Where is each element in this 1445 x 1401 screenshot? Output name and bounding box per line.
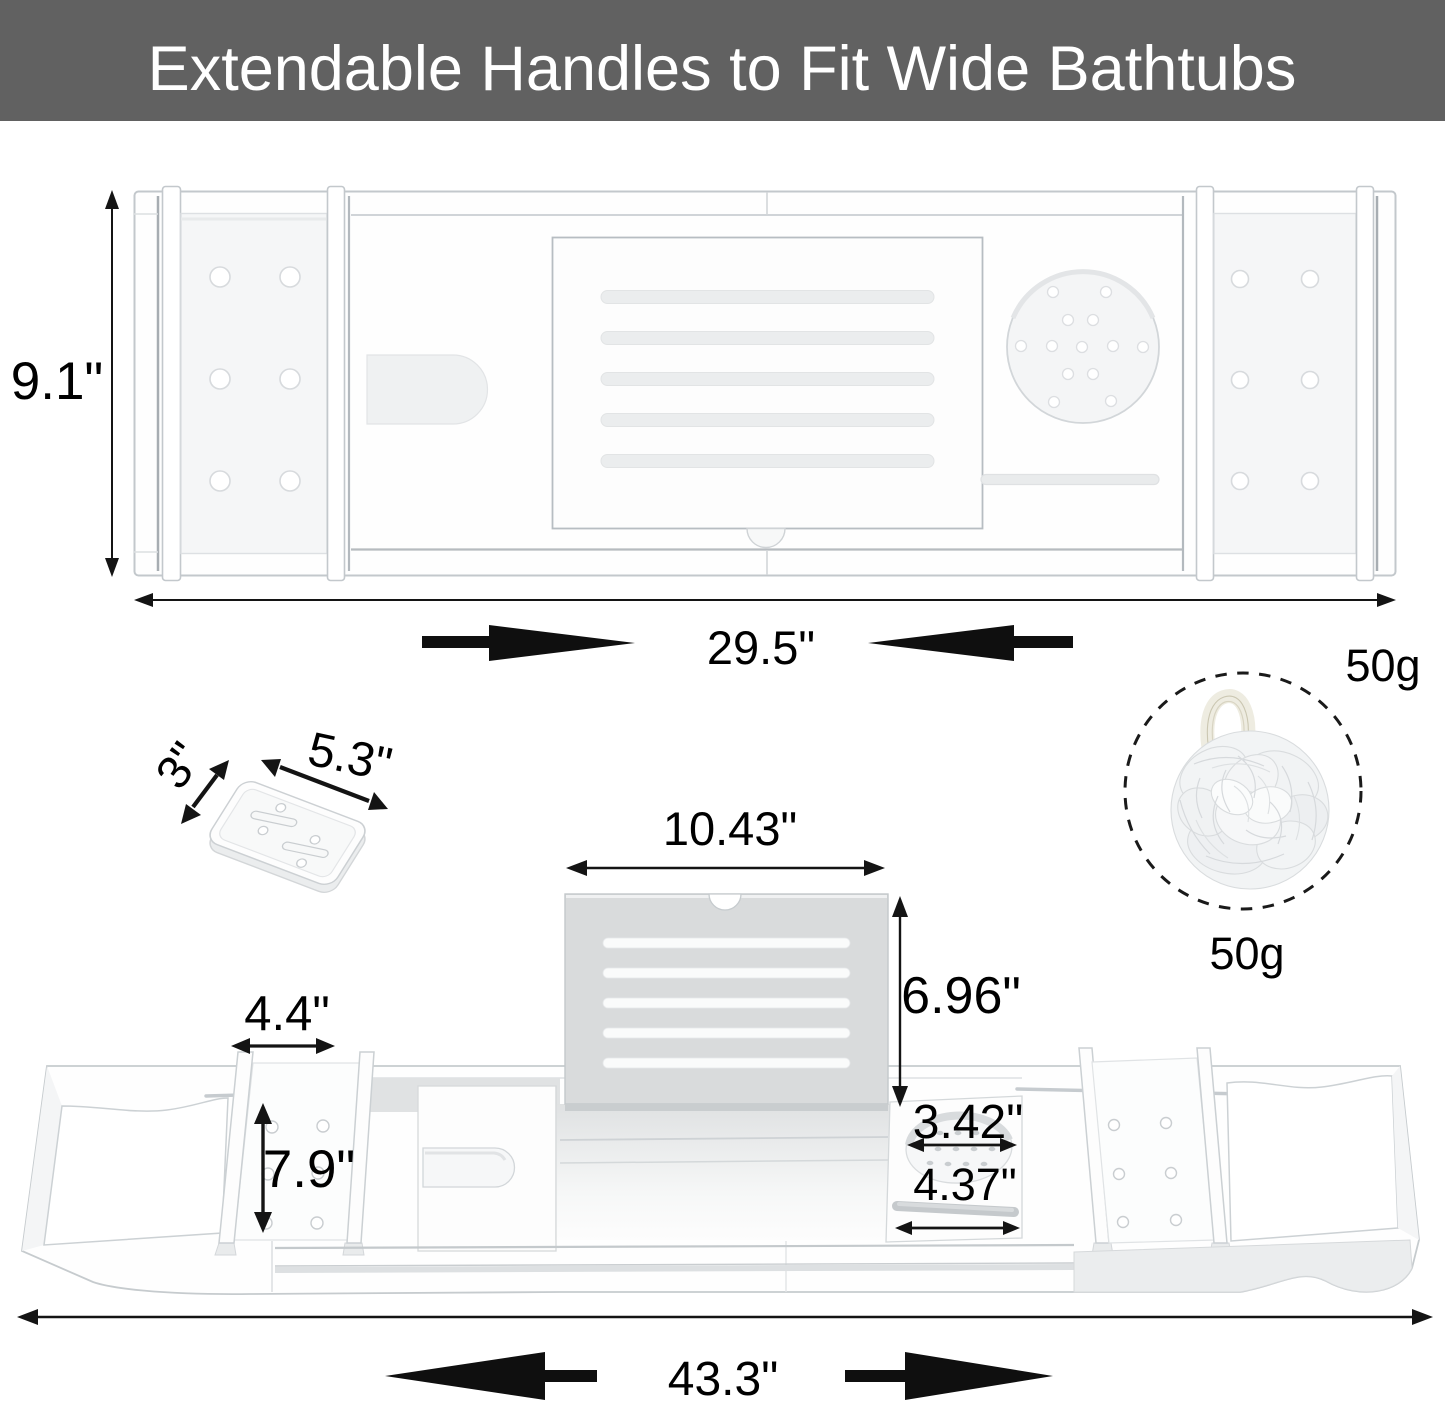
svg-text:3": 3" (145, 732, 213, 797)
svg-text:4.37": 4.37" (913, 1159, 1017, 1210)
svg-text:29.5": 29.5" (707, 621, 815, 674)
svg-text:9.1": 9.1" (11, 352, 104, 411)
svg-text:43.3": 43.3" (668, 1353, 778, 1401)
svg-text:50g: 50g (1209, 928, 1284, 979)
svg-text:4.4": 4.4" (244, 987, 330, 1041)
svg-text:10.43": 10.43" (663, 802, 797, 855)
svg-text:6.96": 6.96" (901, 967, 1021, 1025)
svg-text:Extendable Handles to Fit Wide: Extendable Handles to Fit Wide Bathtubs (148, 34, 1297, 104)
svg-text:50g: 50g (1345, 640, 1420, 691)
svg-text:7.9": 7.9" (263, 1140, 356, 1199)
